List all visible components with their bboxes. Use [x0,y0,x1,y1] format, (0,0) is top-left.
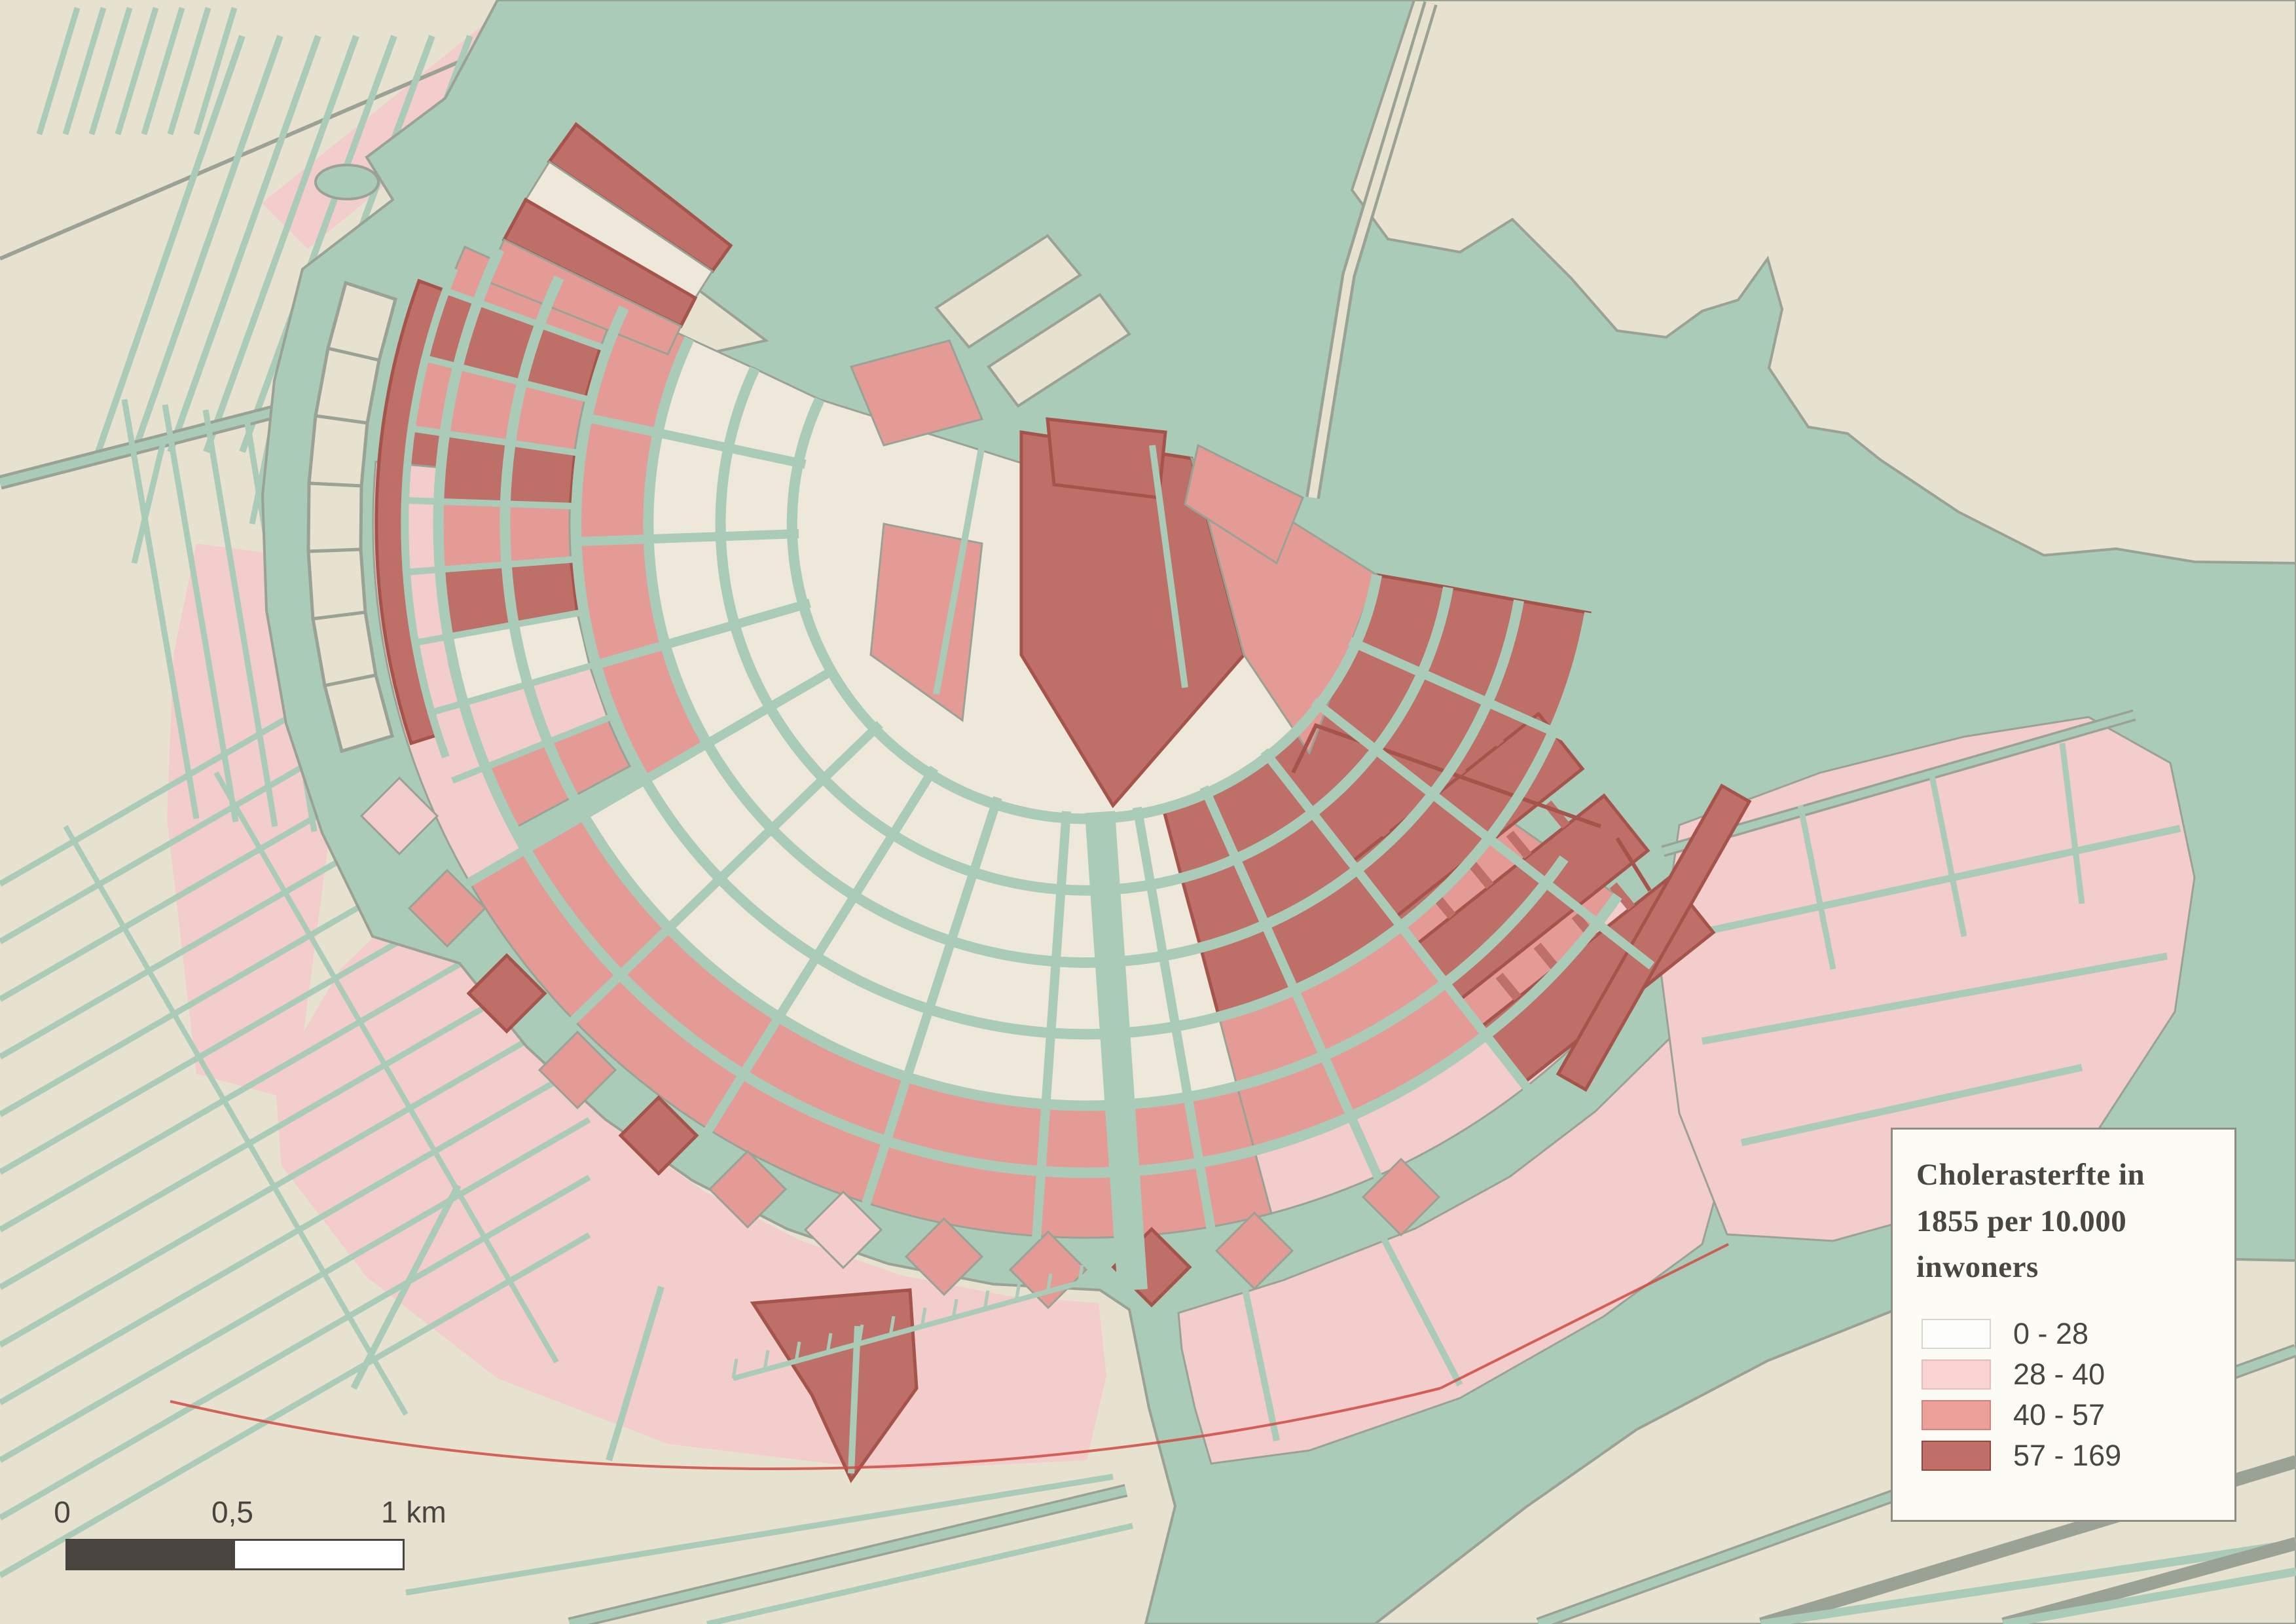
legend-title: Cholerasterfte in 1855 per 10.000 inwone… [1916,1152,2211,1291]
legend-swatch-57-169 [1922,1441,1991,1471]
legend-class-label: 28 - 40 [2013,1357,2105,1392]
scale-label-km: 1 km [381,1494,446,1530]
legend-swatch-40-57 [1922,1400,1991,1430]
scale-bar-track [65,1539,405,1570]
legend-row: 57 - 169 [1916,1437,2211,1474]
legend-class-label: 0 - 28 [2013,1317,2088,1351]
legend-swatch-0-28 [1922,1319,1991,1349]
legend-rows: 0 - 28 28 - 40 40 - 57 57 - 169 [1916,1316,2211,1474]
legend-row: 28 - 40 [1916,1356,2211,1393]
scale-label-half: 0,5 [211,1494,253,1530]
legend-swatch-28-40 [1922,1359,1991,1390]
legend-class-label: 40 - 57 [2013,1398,2105,1432]
legend-row: 0 - 28 [1916,1316,2211,1352]
scale-bar-filled-half [67,1541,235,1568]
legend-row: 40 - 57 [1916,1397,2211,1433]
scale-bar: 0 0,5 1 km [46,1494,465,1579]
legend-class-label: 57 - 169 [2013,1439,2121,1473]
scale-label-zero: 0 [54,1494,71,1530]
legend-panel: Cholerasterfte in 1855 per 10.000 inwone… [1891,1128,2236,1522]
